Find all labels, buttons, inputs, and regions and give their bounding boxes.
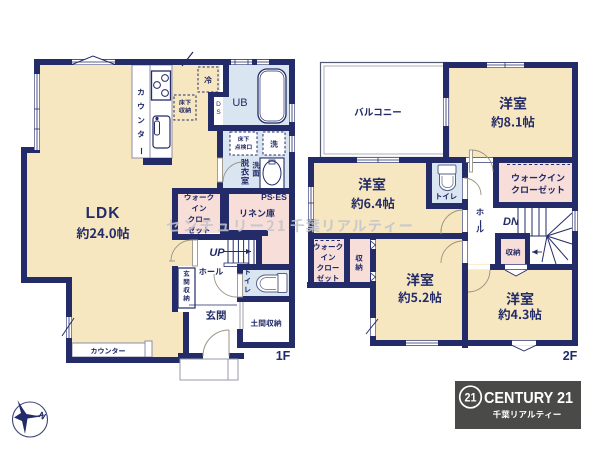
svg-text:1F: 1F	[276, 349, 291, 363]
svg-text:D: D	[216, 101, 221, 108]
svg-text:S: S	[216, 109, 221, 116]
svg-text:UB: UB	[232, 97, 247, 109]
svg-text:21: 21	[465, 393, 478, 405]
svg-text:DN: DN	[503, 216, 520, 228]
svg-text:LDK: LDK	[86, 205, 121, 222]
svg-text:2F: 2F	[563, 349, 578, 363]
svg-text:UP: UP	[209, 247, 225, 259]
svg-text:CENTURY 21: CENTURY 21	[484, 390, 573, 407]
